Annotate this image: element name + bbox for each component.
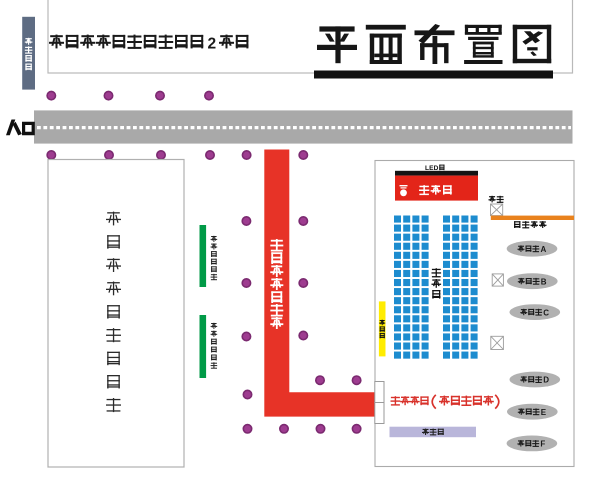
svg-text:B: B xyxy=(541,277,547,286)
svg-text:F: F xyxy=(540,440,545,449)
svg-text:E: E xyxy=(541,408,547,417)
svg-text:A: A xyxy=(541,245,547,254)
svg-text:D: D xyxy=(543,376,549,385)
svg-text:C: C xyxy=(543,308,549,317)
svg-text:2: 2 xyxy=(208,36,217,53)
